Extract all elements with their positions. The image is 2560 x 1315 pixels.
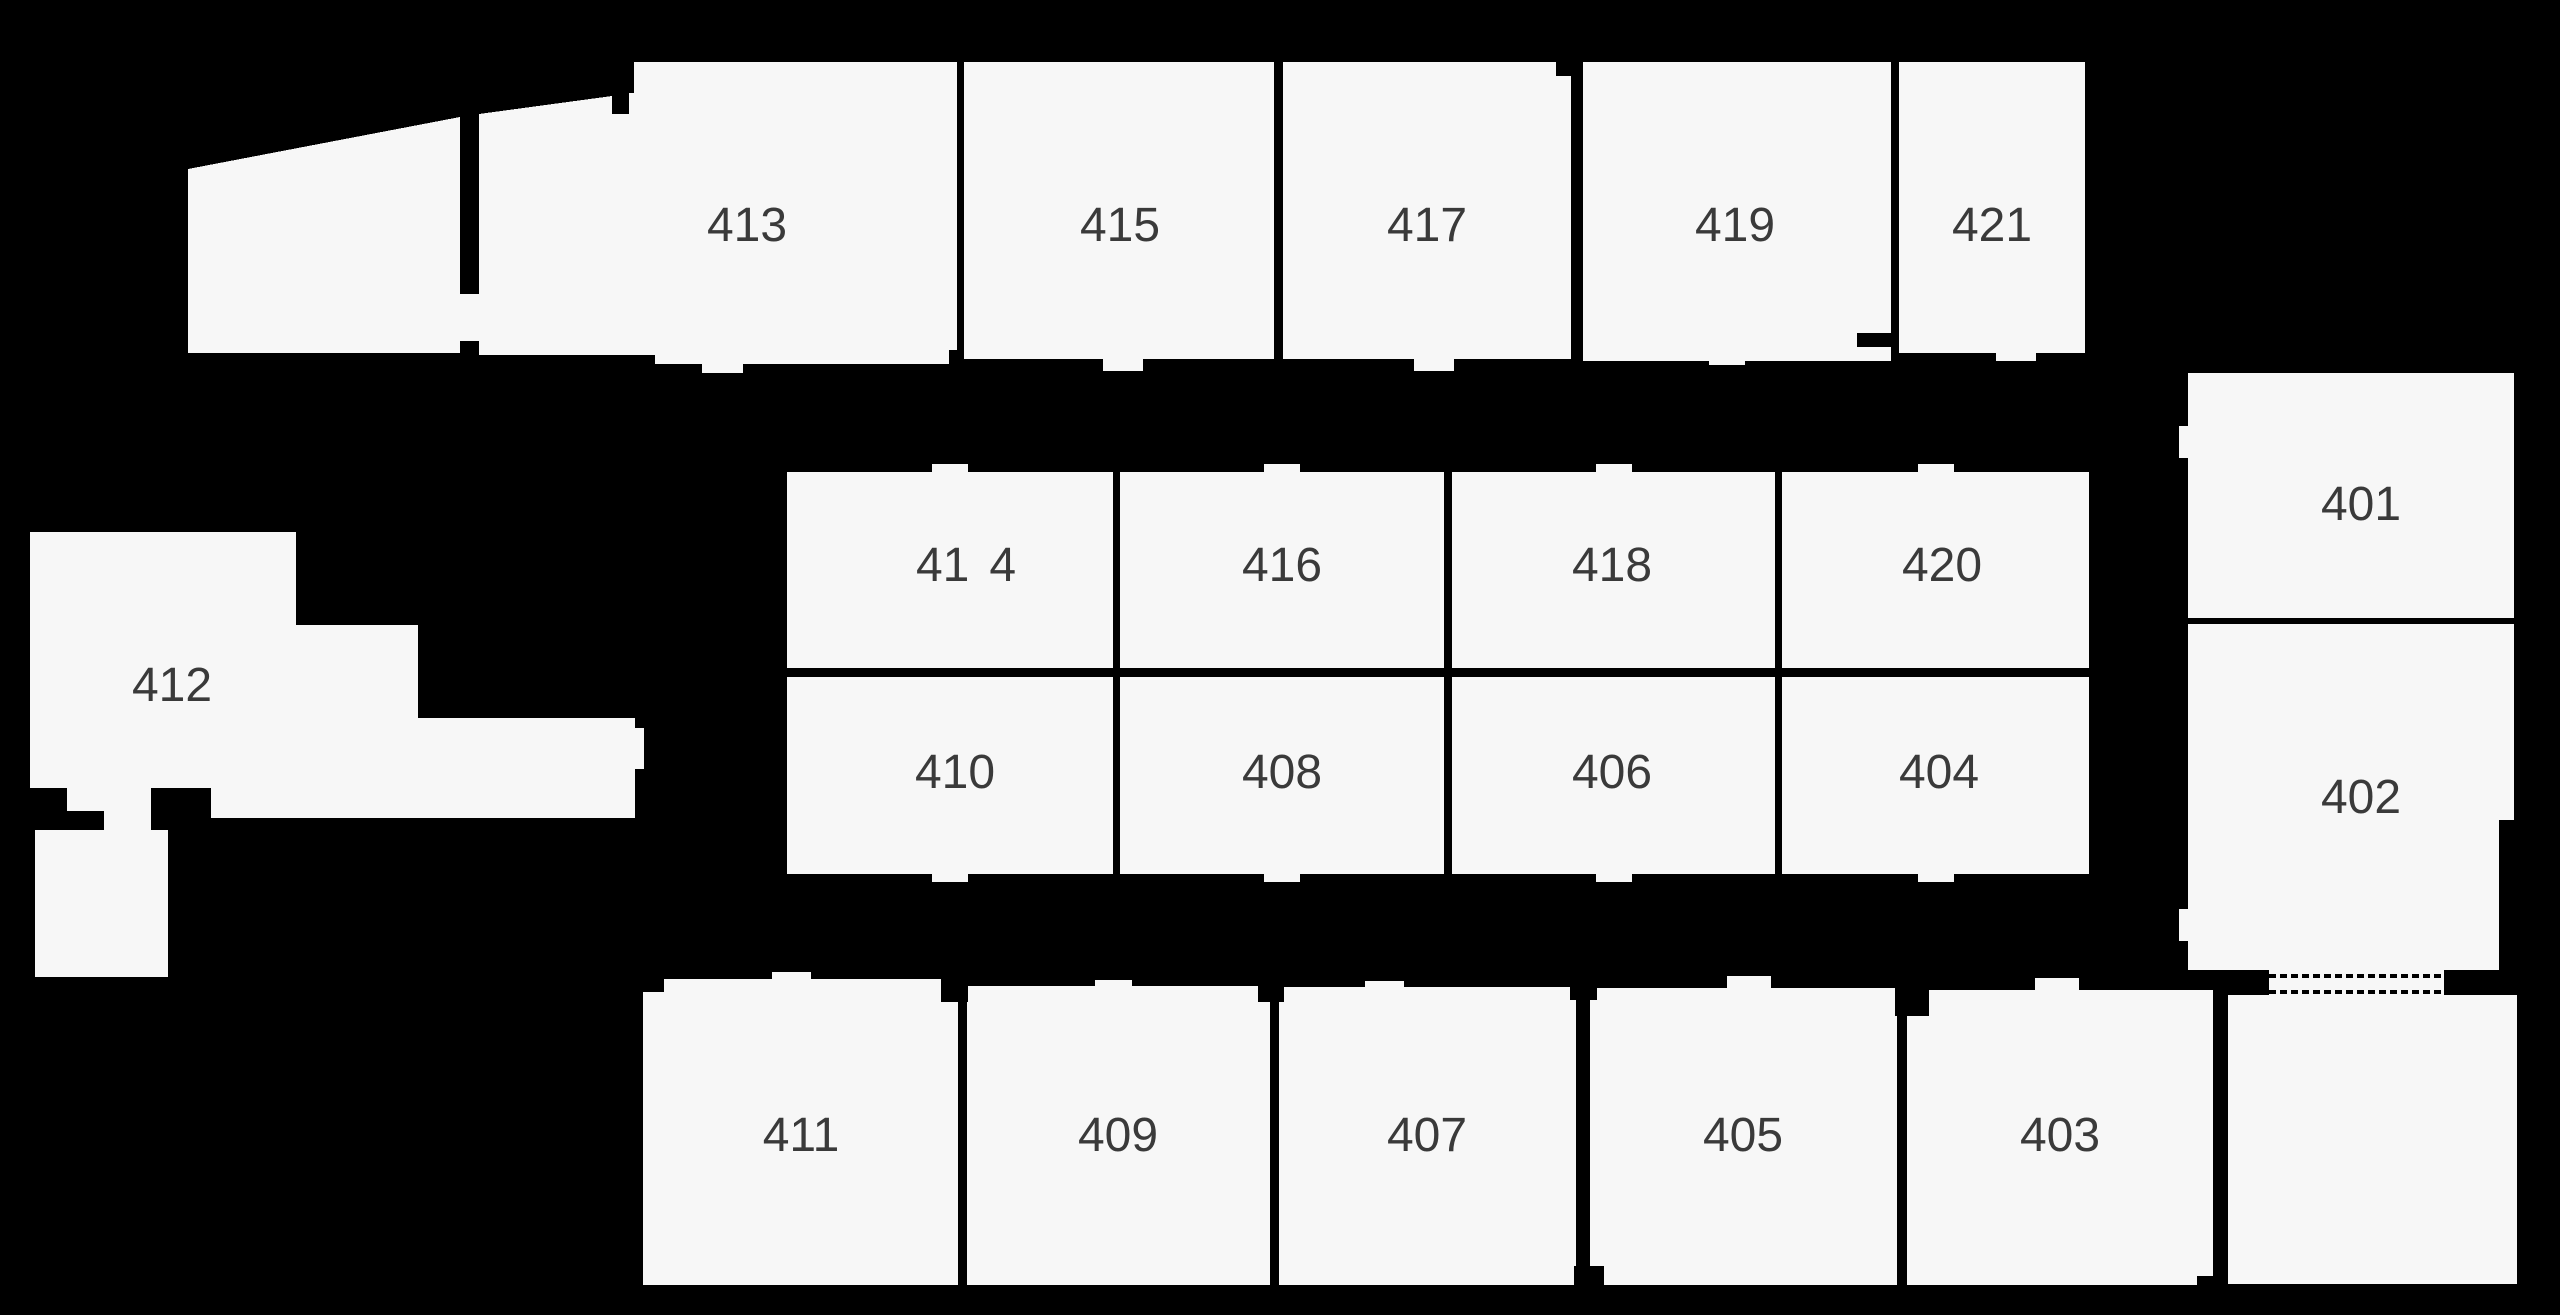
svg-text:417: 417 [1387, 199, 1467, 252]
svg-text:407: 407 [1387, 1109, 1467, 1162]
svg-text:414: 414 [916, 539, 1016, 592]
svg-text:406: 406 [1572, 746, 1652, 799]
svg-text:401: 401 [2321, 478, 2401, 531]
svg-text:410: 410 [915, 746, 995, 799]
svg-text:412: 412 [132, 659, 212, 712]
svg-text:404: 404 [1899, 746, 1979, 799]
svg-text:420: 420 [1902, 539, 1982, 592]
svg-text:402: 402 [2321, 771, 2401, 824]
svg-text:421: 421 [1952, 199, 2032, 252]
svg-text:403: 403 [2020, 1109, 2100, 1162]
svg-text:416: 416 [1242, 539, 1322, 592]
svg-text:415: 415 [1080, 199, 1160, 252]
svg-text:409: 409 [1078, 1109, 1158, 1162]
svg-text:405: 405 [1703, 1109, 1783, 1162]
svg-text:411: 411 [763, 1109, 840, 1162]
svg-text:419: 419 [1695, 199, 1775, 252]
svg-text:408: 408 [1242, 746, 1322, 799]
svg-text:418: 418 [1572, 539, 1652, 592]
svg-text:413: 413 [707, 199, 787, 252]
